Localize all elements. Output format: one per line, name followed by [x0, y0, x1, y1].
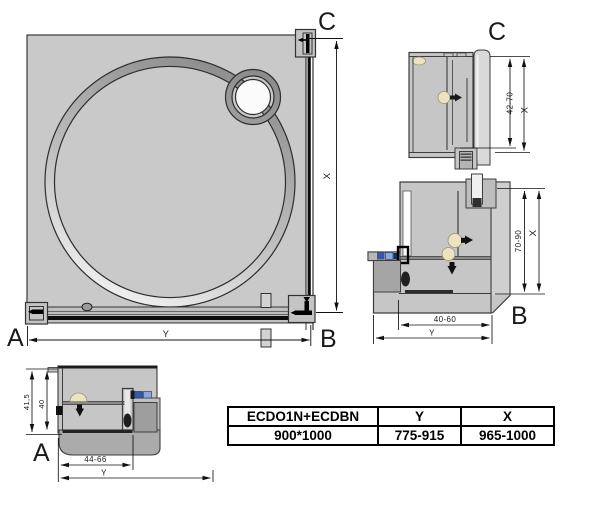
detail-b-htotal-label: Y	[429, 329, 435, 338]
detail-a-wtotal-label: Y	[101, 469, 107, 478]
bracket-bottom-right	[289, 296, 316, 323]
bracket-bottom-left	[26, 303, 48, 325]
corner-post-circle	[236, 80, 271, 115]
detail-b-vrange-label: 70-90	[514, 230, 523, 253]
corner-label-c: C	[318, 8, 336, 36]
detail-a-title: A	[33, 439, 50, 467]
detail-b-title: B	[511, 302, 528, 330]
detail-a-wrange-label: 44-66	[84, 455, 107, 464]
spec-table: ECDO1N+ECDBN Y X 900*1000 775-915 965-10…	[227, 406, 555, 446]
detail-view-c: 42-70 X C	[409, 18, 531, 169]
right-side-panel	[306, 35, 313, 330]
technical-drawing-page: X Y A B C	[0, 0, 608, 506]
spec-header-x: X	[461, 407, 554, 426]
mounting-foot	[455, 148, 477, 169]
fixing-hole	[401, 272, 410, 287]
corner-label-a: A	[7, 324, 24, 352]
main-dim-y-label: Y	[163, 329, 170, 340]
detail-b-vtotal-label: X	[528, 229, 539, 236]
detail-c-range-label: 42-70	[506, 92, 515, 115]
corner-label-b: B	[320, 325, 337, 353]
detail-a-hinner-label: 40	[37, 399, 46, 408]
main-dim-x-label: X	[322, 172, 333, 179]
detail-view-a: 41,5 40 44-66 Y A	[22, 366, 213, 483]
detail-a-htotal-label: 41,5	[22, 394, 31, 410]
roller-part	[144, 392, 152, 399]
spec-header-model: ECDO1N+ECDBN	[228, 407, 378, 426]
adjuster-ball	[448, 234, 462, 248]
door-handle-lower	[261, 329, 271, 347]
detail-c-title: C	[488, 18, 506, 46]
door-handle-upper	[261, 294, 271, 308]
detail-c-total-label: X	[520, 106, 531, 113]
fixing-hole	[124, 414, 132, 428]
roller-part	[135, 392, 143, 399]
spec-header-y: Y	[378, 407, 461, 426]
adjuster-ball	[442, 248, 455, 261]
detail-b-hrange-label: 40-60	[434, 315, 457, 324]
spec-value-x: 965-1000	[461, 426, 554, 445]
detail-view-b: 70-90 X 40-60 Y B	[368, 174, 545, 344]
tray-edge	[59, 430, 160, 455]
spec-value-size: 900*1000	[228, 426, 378, 445]
adjuster-ball	[438, 92, 450, 104]
spec-table-header-row: ECDO1N+ECDBN Y X	[228, 407, 554, 426]
gasket-pad	[413, 57, 426, 65]
spec-value-y: 775-915	[378, 426, 461, 445]
bracket-top-right	[296, 30, 316, 58]
main-plan-view: X Y A B C	[7, 8, 343, 353]
roller-knob	[82, 303, 92, 311]
spec-table-data-row: 900*1000 775-915 965-1000	[228, 426, 554, 445]
